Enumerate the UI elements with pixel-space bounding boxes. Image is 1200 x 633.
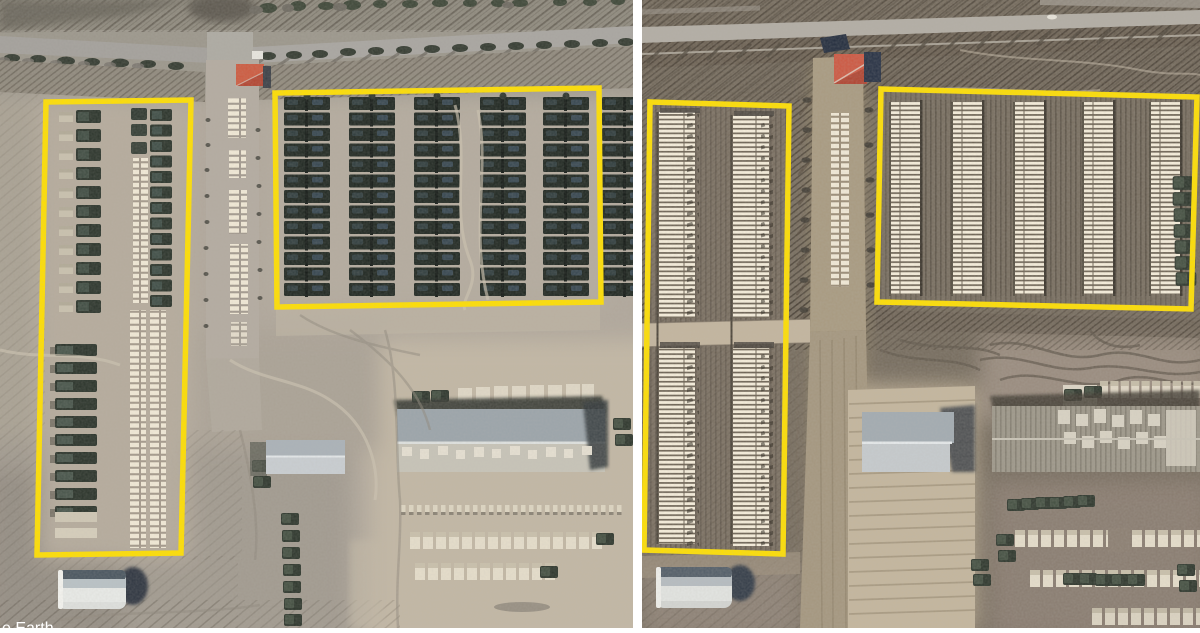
svg-text:e Earth: e Earth: [2, 620, 54, 628]
